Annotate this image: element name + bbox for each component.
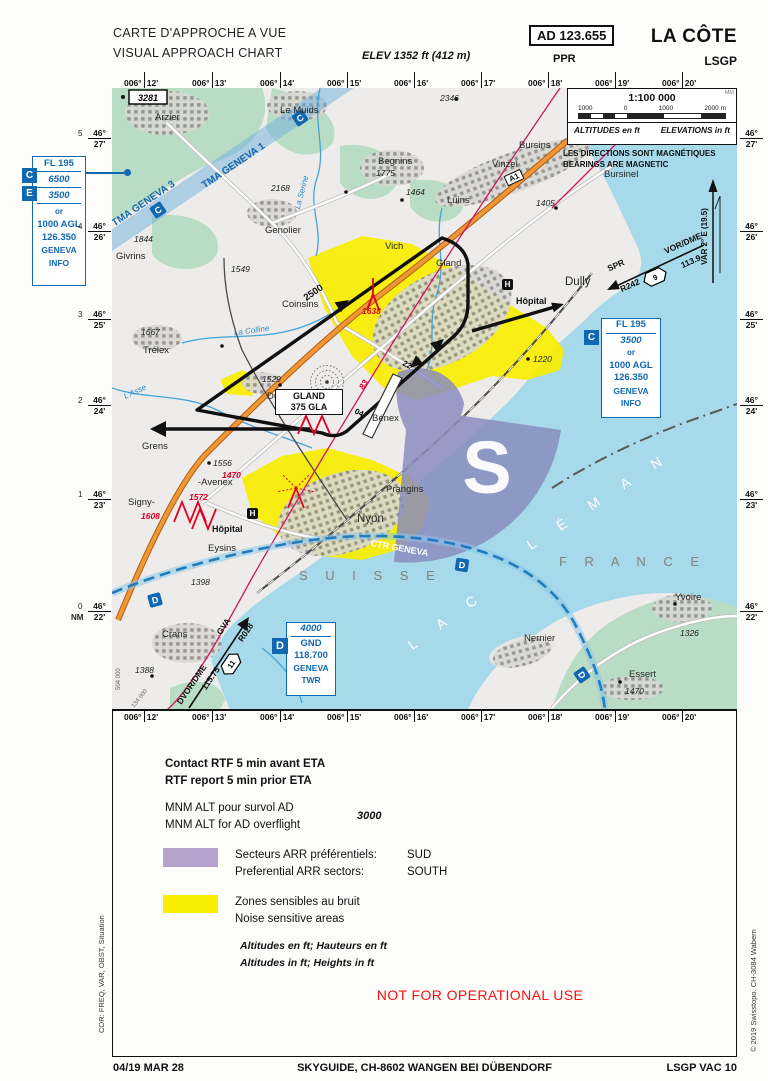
aerodrome-elevation: ELEV 1352 ft (412 m)	[362, 50, 470, 62]
lon-label-bottom: 006°13'	[192, 712, 226, 722]
town: Bénex	[372, 413, 399, 424]
town: Arzier	[155, 112, 180, 123]
town: Genolier	[265, 225, 301, 236]
town: Bursinel	[604, 169, 638, 180]
spot: 2168	[270, 183, 290, 193]
nm-tick: 2	[78, 396, 82, 405]
correction-note: COR: FREQ, VAR, OBST, Situation	[97, 915, 106, 1033]
lon-label-top: 006°18'	[528, 69, 562, 88]
map-bottom-border	[112, 709, 737, 711]
spot: 1844	[134, 234, 153, 244]
mm-label: MM	[725, 90, 734, 96]
spot: 1398	[191, 577, 210, 587]
lat-label-right: 46°22'	[740, 601, 763, 622]
lat-label-left: 46°25'	[88, 309, 111, 330]
scale-value: 1:100 000	[568, 92, 736, 104]
spot: 1529	[262, 374, 281, 384]
suisse-label: S U I S S E	[299, 568, 442, 583]
arr-sector-fr: Secteurs ARR préférentiels:SUD	[235, 847, 431, 864]
hospital-label: Hôpital	[516, 296, 547, 306]
spot: 1388	[135, 665, 154, 675]
town: Signy-	[128, 497, 155, 508]
lat-label-right: 46°27'	[740, 128, 763, 149]
nm-tick: 1	[78, 490, 82, 499]
tma-reference-line	[86, 172, 128, 174]
chart-title-en: VISUAL APPROACH CHART	[113, 46, 283, 60]
lon-label-top: 006°13'	[192, 69, 226, 88]
lon-label-bottom: 006°17'	[461, 712, 495, 722]
spot: 1775	[376, 168, 395, 178]
town: Crans	[162, 629, 188, 640]
sector-letter: S	[462, 426, 511, 509]
variation-label: VAR 2° E (19.5)	[700, 208, 709, 265]
spot: 1326	[680, 628, 699, 638]
lon-label-top: 006°15'	[327, 69, 361, 88]
nm-tick: 0	[78, 602, 82, 611]
mnm-alt-fr: MNM ALT pour survol AD	[165, 800, 294, 817]
airspace-box-d: 4000 GND 118.700 GENEVA TWR	[286, 622, 336, 696]
noise-zone-en: Noise sensitive areas	[235, 911, 344, 928]
arr-sector-en: Preferential ARR sectors:SOUTH	[235, 864, 447, 881]
town: Gland	[436, 258, 461, 269]
airspace-box-ce: FL 195 6500 3500 or 1000 AGL 126.350 GEN…	[32, 156, 86, 286]
lat-label-right: 46°25'	[740, 309, 763, 330]
lon-label-top: 006°14'	[260, 69, 294, 88]
lat-label-right: 46°23'	[740, 489, 763, 510]
lon-label-bottom: 006°18'	[528, 712, 562, 722]
lon-label-bottom: 006°12'	[124, 712, 158, 722]
town: Nernier	[524, 633, 555, 644]
lat-label-left: 46°22'	[88, 601, 111, 622]
obstacle-elev: 1572	[189, 492, 208, 502]
nm-tick: 4	[78, 222, 82, 231]
town: Nyon	[357, 513, 384, 525]
town: Prangins	[386, 484, 424, 495]
town: Trélex	[143, 345, 169, 356]
airspace-box-c: FL 195 3500 or 1000 AGL 126.350 GENEVA I…	[601, 318, 661, 418]
nm-tick: 5	[78, 129, 82, 138]
spot: 1470	[625, 686, 644, 696]
not-for-operational-use: NOT FOR OPERATIONAL USE	[340, 987, 620, 1003]
france-label: F R A N C E	[559, 554, 706, 569]
lon-label-top: 006°17'	[461, 69, 495, 88]
spot: 1549	[231, 264, 250, 274]
town: Yvoire	[675, 592, 701, 603]
noise-zone-swatch	[163, 895, 218, 913]
ad-frequency-box: AD 123.655	[529, 25, 614, 46]
rtf-note-en: RTF report 5 min prior ETA	[165, 773, 312, 790]
lon-label-top: 006°16'	[394, 69, 428, 88]
tma-reference-dot	[124, 169, 131, 176]
lat-label-left: 46°24'	[88, 395, 111, 416]
obstacle-elev: 1638	[362, 306, 381, 316]
elevations-en: ELEVATIONS in ft	[661, 125, 730, 135]
lon-label-top: 006°12'	[124, 69, 158, 88]
lon-label-bottom: 006°15'	[327, 712, 361, 722]
lat-label-left: 46°23'	[88, 489, 111, 510]
footer-page: LSGP VAC 10	[612, 1062, 737, 1074]
lat-label-left: 46°26'	[88, 221, 111, 242]
lon-label-bottom: 006°20'	[662, 712, 696, 722]
town: Le Muids	[280, 105, 319, 116]
obstacle-elev: 1608	[141, 511, 160, 521]
lon-label-bottom: 006°19'	[595, 712, 629, 722]
scale-bar	[578, 113, 726, 119]
town: Luins	[447, 195, 470, 206]
lat-label-left: 46°27'	[88, 128, 111, 149]
mnm-alt-value: 3000	[357, 810, 381, 822]
obstacle-elev: 1470	[222, 470, 241, 480]
spot: 1556	[213, 458, 232, 468]
mnm-alt-en: MNM ALT for AD overflight	[165, 817, 300, 834]
lon-label-bottom: 006°14'	[260, 712, 294, 722]
lon-label-top: 006°20'	[662, 69, 696, 88]
town: Vich	[385, 241, 403, 252]
town: Begnins	[378, 156, 413, 167]
vac-chart-page: { "header":{"title_fr":"CARTE D'APPROCHE…	[0, 0, 768, 1081]
chart-title-fr: CARTE D'APPROCHE A VUE	[113, 26, 286, 40]
grid-504000: 504 000	[116, 668, 122, 690]
spot: 1405	[536, 198, 555, 208]
lon-label-bottom: 006°16'	[394, 712, 428, 722]
airport-icao: LSGP	[704, 54, 737, 68]
class-d-square: D	[272, 638, 288, 654]
class-d-marker: D	[455, 558, 470, 573]
town: Vinzel	[492, 159, 518, 170]
spot: 1220	[533, 354, 552, 364]
town: Eysins	[208, 543, 236, 554]
spot: 1464	[406, 187, 425, 197]
magnetic-note: LES DIRECTIONS SONT MAGNÉTIQUESBEARINGS …	[563, 148, 732, 170]
rtf-note-fr: Contact RTF 5 min avant ETA	[165, 756, 325, 773]
nm-unit-label: NM	[71, 613, 83, 622]
town: Dully	[565, 276, 591, 288]
nm-tick: 3	[78, 310, 82, 319]
class-c-square: C	[22, 168, 37, 183]
town: Bursins	[519, 140, 551, 151]
town: Essert	[629, 669, 656, 680]
noise-zone-fr: Zones sensibles au bruit	[235, 894, 360, 911]
altitudes-note-en: Altitudes in ft; Heights in ft	[240, 955, 374, 972]
lat-label-right: 46°24'	[740, 395, 763, 416]
town: Givrins	[116, 251, 146, 262]
class-c-square: C	[584, 330, 599, 345]
altitudes-note-fr: Altitudes en ft; Hauteurs en ft	[240, 938, 387, 955]
gland-navaid-box: GLAND375 GLA	[275, 389, 343, 415]
ppr-label: PPR	[553, 53, 576, 65]
hospital-icon: H	[502, 279, 513, 290]
town: Grens	[142, 441, 168, 452]
lat-label-right: 46°26'	[740, 221, 763, 242]
class-e-square: E	[22, 186, 37, 201]
arr-sector-swatch	[163, 848, 218, 867]
lon-label-top: 006°19'	[595, 69, 629, 88]
hospital-label: Hôpital	[212, 524, 243, 534]
spot: 2346	[439, 93, 459, 103]
scale-tick-labels: 1000010002000 m	[568, 105, 736, 112]
airport-name: LA CÔTE	[651, 26, 737, 48]
hospital-icon: H	[247, 508, 258, 519]
obstacle-3281: 3281	[138, 93, 158, 103]
scale-box: MM 1:100 000 1000010002000 m ALTITUDES e…	[567, 88, 737, 145]
town: Coinsins	[282, 299, 319, 310]
spot: 1667	[141, 327, 160, 337]
altitudes-fr: ALTITUDES en ft	[574, 125, 640, 135]
copyright-note: © 2019 Swisstopo. CH-3084 Wabern	[749, 929, 758, 1052]
